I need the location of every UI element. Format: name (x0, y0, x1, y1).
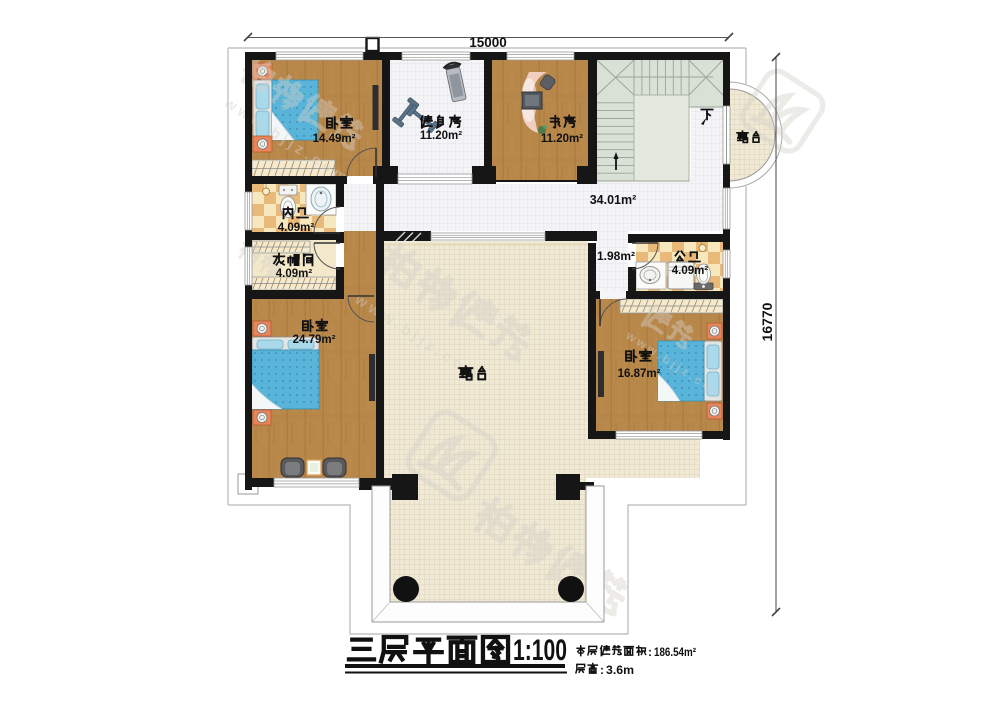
svg-text:15000: 15000 (469, 35, 507, 50)
svg-text:16.87m²: 16.87m² (618, 368, 661, 380)
svg-text:16770: 16770 (759, 302, 775, 341)
svg-text:34.01m²: 34.01m² (590, 193, 637, 207)
svg-text:3.6m: 3.6m (606, 663, 634, 677)
svg-text:4.09m²: 4.09m² (276, 268, 313, 280)
svg-text:24.79m²: 24.79m² (293, 334, 336, 346)
svg-text::: : (648, 645, 652, 659)
svg-text::: : (600, 663, 604, 677)
svg-text:11.20m²: 11.20m² (420, 130, 462, 142)
svg-text:1:100: 1:100 (513, 634, 567, 667)
svg-text:4.09m²: 4.09m² (672, 265, 709, 277)
svg-text:186.54m²: 186.54m² (654, 645, 696, 659)
svg-text:14.49m²: 14.49m² (313, 133, 356, 145)
svg-text:4.09m²: 4.09m² (278, 222, 315, 234)
svg-text:1.98m²: 1.98m² (597, 249, 635, 263)
svg-text:11.20m²: 11.20m² (541, 133, 583, 145)
